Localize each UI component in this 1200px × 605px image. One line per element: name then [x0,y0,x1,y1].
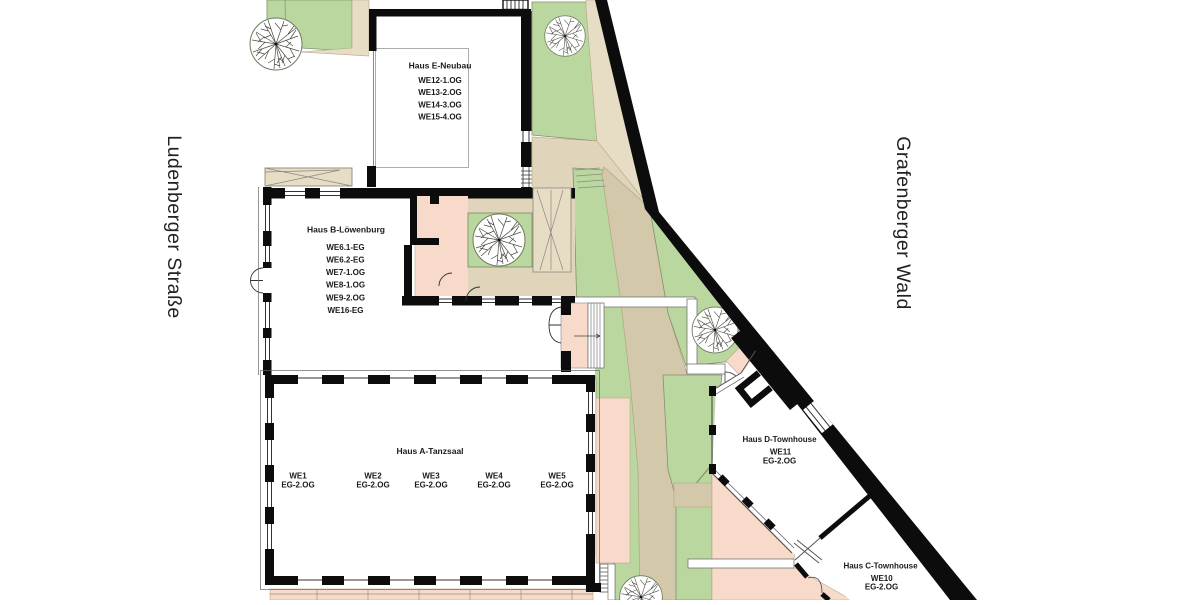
svg-text:Haus D-Townhouse: Haus D-Townhouse [742,435,817,444]
svg-text:Haus B-Löwenburg: Haus B-Löwenburg [307,225,385,235]
svg-text:WE14-3.OG: WE14-3.OG [418,101,462,110]
svg-text:EG-2.OG: EG-2.OG [414,481,447,490]
svg-text:EG-2.OG: EG-2.OG [763,456,796,465]
svg-text:EG-2.OG: EG-2.OG [865,583,898,592]
svg-text:WE3: WE3 [422,472,440,481]
svg-text:WE11: WE11 [770,448,792,457]
svg-text:EG-2.OG: EG-2.OG [281,481,314,490]
svg-text:EG-2.OG: EG-2.OG [477,481,510,490]
svg-text:EG-2.OG: EG-2.OG [540,481,573,490]
svg-text:Ludenberger Straße: Ludenberger Straße [163,135,185,319]
svg-text:WE12-1.OG: WE12-1.OG [418,76,462,85]
svg-text:WE7-1.OG: WE7-1.OG [326,268,365,277]
svg-text:WE1: WE1 [289,472,307,481]
svg-text:WE6.2-EG: WE6.2-EG [326,256,364,265]
svg-text:EG-2.OG: EG-2.OG [356,481,389,490]
svg-text:WE13-2.OG: WE13-2.OG [418,88,462,97]
svg-text:Haus A-Tanzsaal: Haus A-Tanzsaal [396,446,463,456]
svg-text:Grafenberger Wald: Grafenberger Wald [892,136,914,310]
svg-text:WE6.1-EG: WE6.1-EG [326,243,364,252]
svg-text:WE9-2.OG: WE9-2.OG [326,294,365,303]
svg-text:Haus E-Neubau: Haus E-Neubau [409,61,472,71]
svg-text:WE4: WE4 [485,472,503,481]
svg-text:WE16-EG: WE16-EG [327,306,363,315]
svg-text:WE5: WE5 [548,472,566,481]
svg-text:WE15-4.OG: WE15-4.OG [418,113,462,122]
svg-text:WE8-1.OG: WE8-1.OG [326,281,365,290]
svg-text:WE10: WE10 [871,574,893,583]
svg-text:Haus C-Townhouse: Haus C-Townhouse [843,561,918,570]
svg-text:WE2: WE2 [364,472,382,481]
